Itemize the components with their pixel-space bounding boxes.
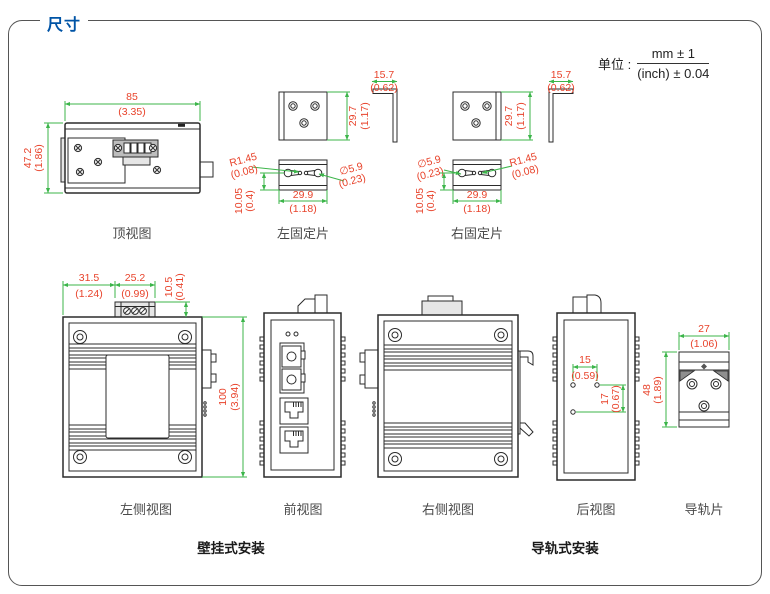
screw-icon [94,158,101,165]
plate-profile [549,89,573,142]
label-area [106,355,169,438]
rj45-port [280,427,308,453]
dim-d2-mm: 25.2 [125,272,146,284]
top-notch [178,124,185,127]
dim-w-mm: 27 [698,323,710,335]
dim-w-mm: 29.9 [467,189,488,201]
dim-w-in: (1.18) [289,203,316,215]
screw-icon [495,329,508,342]
screw-icon [74,331,87,344]
plate-face [453,92,501,140]
hole-icon [483,102,491,110]
hole-icon [595,383,599,387]
screw-icon [179,451,192,464]
dim-thk-mm: 15.7 [551,69,572,81]
screw-icon [76,168,83,175]
terminal-block [298,295,327,313]
view-label: 顶视图 [112,226,151,241]
screw-icon [74,451,87,464]
hole-icon [472,119,480,127]
dim-thk-in: (0.62) [547,82,574,94]
side-connector [200,162,213,177]
view-label: 右固定片 [451,226,503,241]
dim-w-in: (1.18) [463,203,490,215]
dim-w-in: (1.06) [690,338,717,350]
dim-o-in: (0.4) [244,190,256,212]
screw-icon [179,331,192,344]
top-view: 85 (3.35) 47.2 (1.86) 顶视图 [22,91,213,241]
dim-d1-mm: 31.5 [79,272,100,284]
view-label: 后视图 [576,502,615,517]
terminal-block [422,296,462,315]
dim-thk-mm: 15.7 [374,69,395,81]
dim-width-in: (3.35) [118,106,145,118]
dim-d3-in: (0.41) [174,273,186,300]
screw-icon [389,453,402,466]
screw-icon [495,453,508,466]
left-fixing-plate: 29.7 (1.17) 15.7 (0.62) R1.45 (0.08) ∅ [228,69,398,241]
hole-icon [571,383,575,387]
view-label: 左固定片 [277,226,329,241]
hole-icon [289,102,297,110]
right-fixing-plate: 29.7 (1.17) 15.7 (0.62) ∅5.9 (0.23) R1 [414,69,575,241]
dim-d2-in: (0.99) [121,288,148,300]
plate-strip [679,412,729,420]
screw-icon [699,401,709,411]
hole-icon [461,102,469,110]
view-label: 右侧视图 [422,502,474,517]
dim-h-in: (0.67) [610,385,622,412]
screw-icon [74,144,81,151]
dim-h-mm: 29.7 [347,106,359,127]
dim-width-mm: 85 [126,91,138,103]
dim-h-in: (1.17) [359,102,371,129]
dimension-page: 尺寸 单位 : mm ± 1 (inch) ± 0.04 [0,0,770,594]
wall-mount-caption: 壁挂式安装 [197,540,265,556]
rear-view: 15 (0.59) 17 (0.67) 后视图 [553,295,639,517]
side-connector [365,350,378,388]
dim-h-in: (1.89) [652,376,664,403]
dim-o-in: (0.4) [425,190,437,212]
screw-icon [711,379,721,389]
side-connector [202,350,211,388]
rj45-port [280,398,308,424]
view-label: 前视图 [283,502,322,517]
screw-icon [687,379,697,389]
hole-icon [300,119,308,127]
dim-w-in: (0.59) [571,370,598,382]
view-label: 导轨片 [684,502,723,517]
dim-h-in: (3.94) [229,383,241,410]
front-view: 前视图 [260,295,345,517]
dim-thk-in: (0.62) [370,82,397,94]
din-rail-plate: 27 (1.06) 48 (1.89) 导轨片 [641,323,729,517]
dim-h-mm: 100 [217,388,229,406]
plate-profile [373,89,397,142]
terminal-block [115,302,155,317]
dim-h-mm: 29.7 [503,106,515,127]
plate-strip [679,420,729,427]
dim-height-in: (1.86) [33,144,45,171]
plate-strip [679,352,729,362]
dim-w-mm: 29.9 [293,189,314,201]
hole-icon [311,102,319,110]
view-label: 左侧视图 [120,502,172,517]
terminal-block [573,295,601,313]
left-side-view: 31.5 (1.24) 25.2 (0.99) 10.5 (0.41) 100 … [63,272,247,517]
rail-mount-caption: 导轨式安装 [531,540,599,556]
dimension-diagram: 85 (3.35) 47.2 (1.86) 顶视图 29.7 (1.17) 15… [0,0,770,594]
screw-icon [153,166,160,173]
right-side-view: 右侧视图 [360,296,533,517]
dim-h-in: (1.17) [515,102,527,129]
dim-w-mm: 15 [579,354,591,366]
plate-face [279,92,327,140]
hole-icon [571,410,575,414]
dim-d1-in: (1.24) [75,288,102,300]
screw-icon [389,329,402,342]
